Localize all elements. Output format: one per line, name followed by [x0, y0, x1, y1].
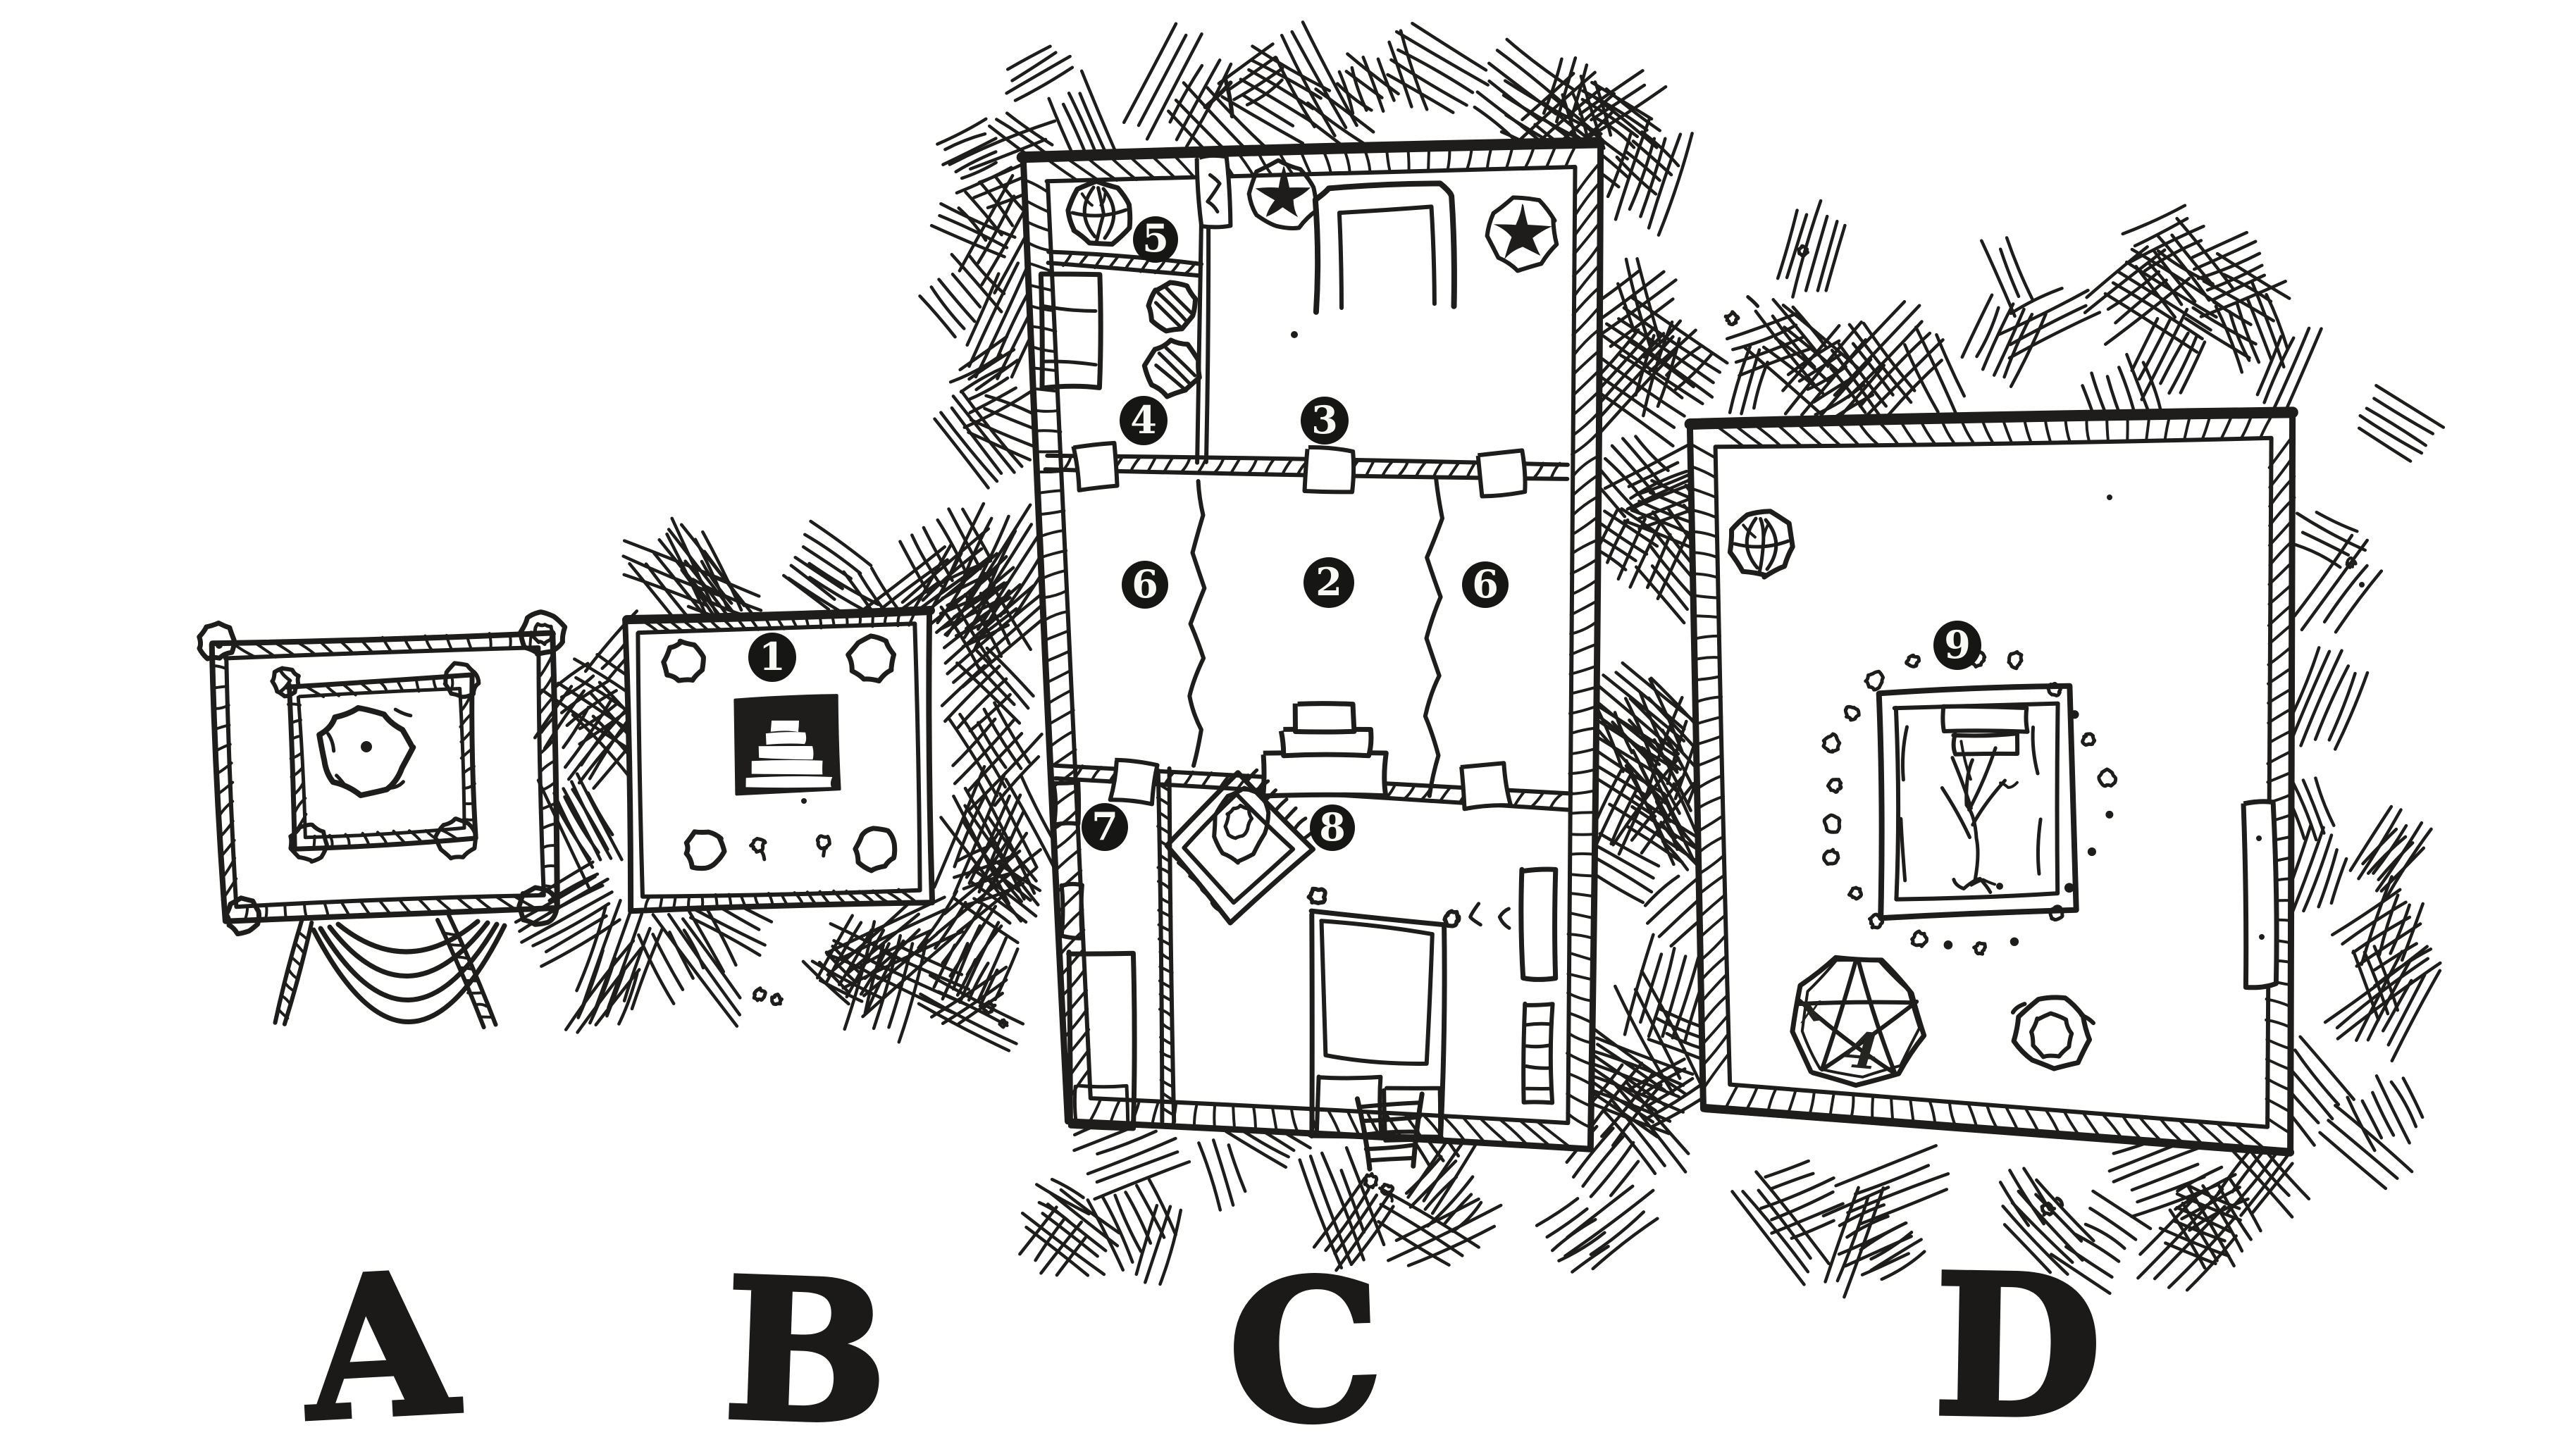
room-marker-number: 6: [1472, 561, 1499, 607]
area-label-a: A: [297, 1229, 466, 1454]
door: [1073, 442, 1119, 490]
door: [1110, 759, 1158, 804]
rope-strand-left: [275, 919, 312, 1024]
pentagram-mark-4: 4: [1842, 1020, 1881, 1081]
door: [1304, 447, 1355, 495]
room-marker-1: 1: [748, 633, 796, 682]
area-label-c: C: [1225, 1235, 1387, 1454]
corner-knobs: [199, 612, 565, 934]
outer-rope-wall: [212, 632, 558, 921]
floor-fills: [626, 140, 2293, 1155]
room-marker-number: 9: [1944, 622, 1971, 667]
room-marker-7: 7: [1082, 803, 1128, 851]
room-marker-4: 4: [1120, 396, 1168, 445]
room-marker-number: 8: [1319, 804, 1346, 850]
room-marker-6a: 6: [1122, 561, 1168, 609]
area-label-d: D: [1932, 1231, 2104, 1454]
room-marker-number: 4: [1130, 397, 1157, 442]
room-marker-3: 3: [1301, 397, 1349, 445]
door: [1460, 762, 1511, 810]
room-marker-6b: 6: [1462, 561, 1509, 608]
area-d-floor: [1692, 412, 2293, 1155]
area-a-room: [199, 612, 565, 1027]
wall-door: [2243, 802, 2277, 988]
room-marker-number: 7: [1091, 804, 1118, 849]
room-marker-number: 2: [1315, 559, 1342, 604]
dungeon-map-page: x 4 1 2 3 4 5 6 6 7 8 9 A B C D: [0, 0, 2576, 1454]
room-marker-number: 6: [1132, 561, 1158, 607]
boulder: [319, 708, 413, 795]
room-marker-number: 5: [1142, 216, 1169, 261]
area-label-b: B: [721, 1235, 893, 1454]
door: [1478, 450, 1526, 497]
room-marker-2: 2: [1304, 557, 1354, 608]
room-marker-9: 9: [1933, 621, 1981, 670]
room-marker-8: 8: [1310, 804, 1355, 851]
dungeon-map: x 4 1 2 3 4 5 6 6 7 8 9 A B C D: [0, 0, 2576, 1454]
room-marker-number: 3: [1311, 397, 1338, 442]
room-marker-number: 1: [759, 634, 786, 679]
